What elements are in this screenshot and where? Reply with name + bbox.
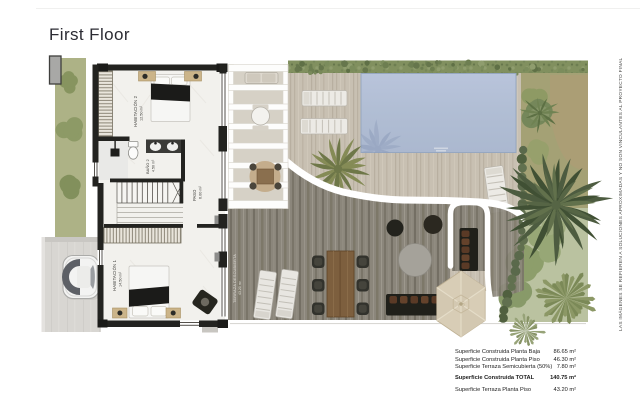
svg-text:12.50 m²: 12.50 m² [140,105,144,121]
svg-text:14.50 m²: 14.50 m² [119,271,123,287]
svg-text:4.50 m²: 4.50 m² [152,159,156,172]
svg-text:43.20 m²: 43.20 m² [238,280,242,295]
svg-text:HABITACIÓN 2: HABITACIÓN 2 [133,95,138,127]
svg-text:TERRAZA DESCUBIERTA: TERRAZA DESCUBIERTA [233,254,237,303]
svg-text:PASO: PASO [192,189,197,201]
svg-text:HABITACIÓN 1: HABITACIÓN 1 [112,259,117,291]
svg-text:BAÑO 2: BAÑO 2 [145,159,150,174]
svg-text:6.00 m²: 6.00 m² [199,185,203,199]
